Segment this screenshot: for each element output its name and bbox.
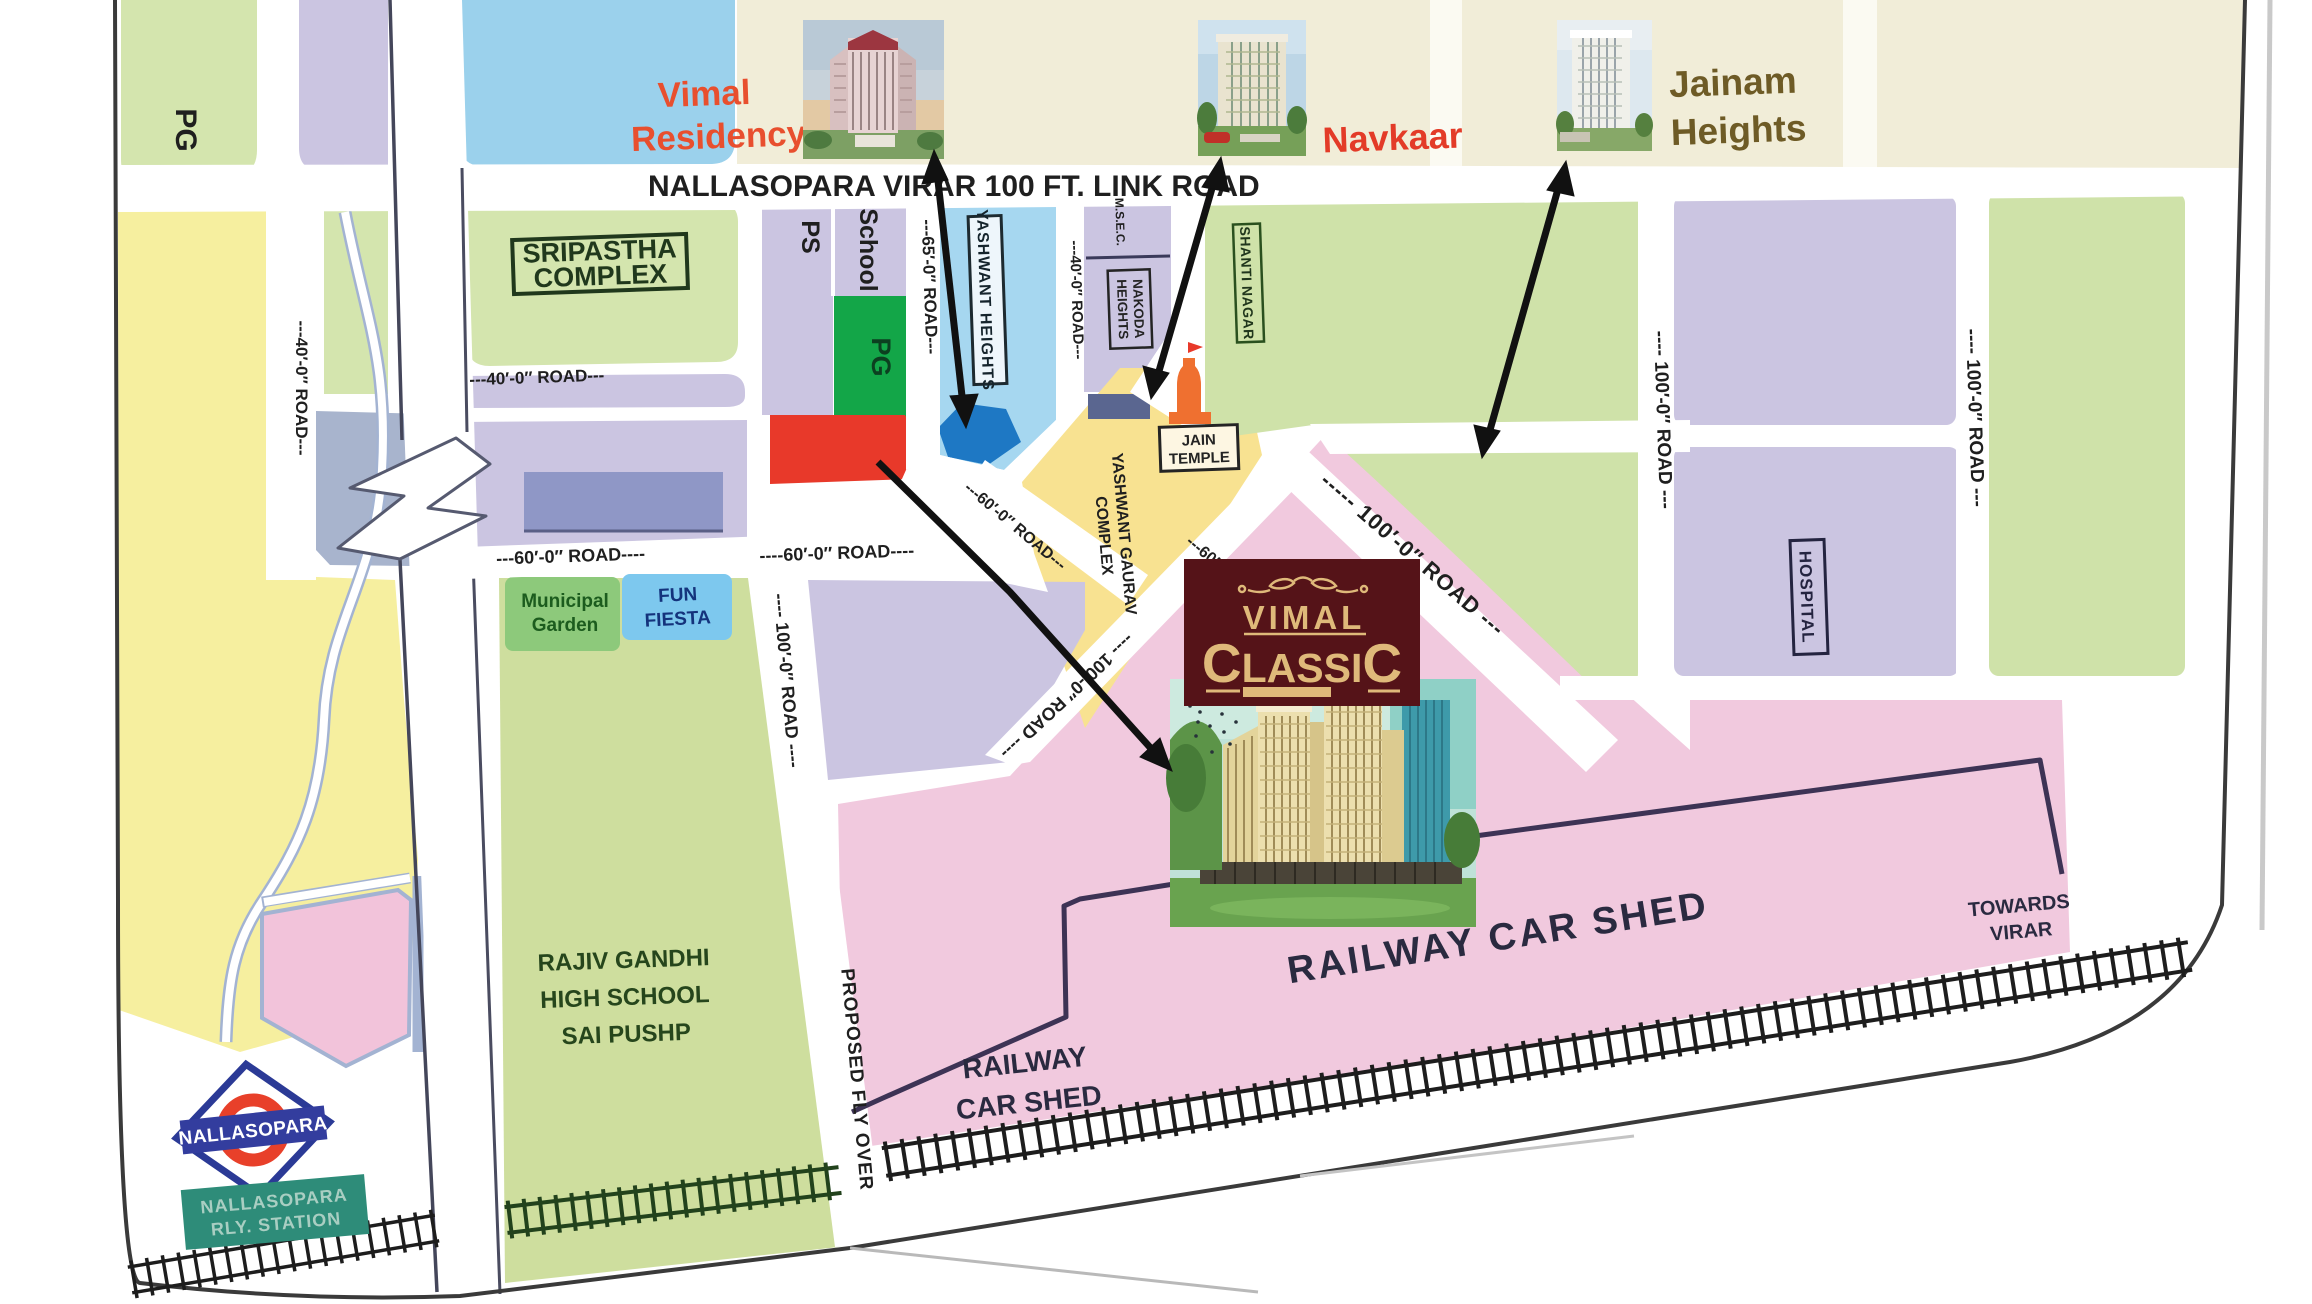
- svg-text:Jainam: Jainam: [1668, 60, 1797, 105]
- svg-text:VIMAL: VIMAL: [1243, 599, 1366, 636]
- svg-text:Municipal: Municipal: [521, 591, 609, 612]
- svg-text:FIESTA: FIESTA: [644, 607, 711, 631]
- svg-text:NALLASOPARA VIRAR 100 FT. LINK: NALLASOPARA VIRAR 100 FT. LINK ROAD: [648, 170, 1260, 203]
- svg-text:TEMPLE: TEMPLE: [1169, 449, 1230, 468]
- svg-text:Residency: Residency: [630, 114, 807, 159]
- svg-text:Navkaar: Navkaar: [1322, 115, 1463, 161]
- svg-text:PG: PG: [866, 337, 896, 376]
- svg-text:PG: PG: [169, 108, 202, 151]
- svg-text:M.S.E.C.: M.S.E.C.: [1112, 198, 1128, 246]
- svg-text:HEIGHTS: HEIGHTS: [1114, 279, 1131, 340]
- svg-text:NAKODA: NAKODA: [1130, 279, 1147, 339]
- svg-text:Garden: Garden: [532, 615, 599, 636]
- svg-text:School: School: [854, 208, 882, 291]
- svg-text:Vimal: Vimal: [657, 73, 751, 115]
- svg-text:HOSPITAL: HOSPITAL: [1795, 550, 1817, 643]
- svg-text:SAI PUSHP: SAI PUSHP: [561, 1019, 691, 1050]
- svg-text:COMPLEX: COMPLEX: [533, 259, 667, 294]
- svg-text:FUN: FUN: [658, 584, 698, 607]
- svg-text:Heights: Heights: [1670, 107, 1807, 153]
- svg-text:PS: PS: [796, 220, 824, 253]
- svg-text:JAIN: JAIN: [1181, 431, 1216, 449]
- svg-text:---40′-0″ ROAD---: ---40′-0″ ROAD---: [292, 321, 311, 456]
